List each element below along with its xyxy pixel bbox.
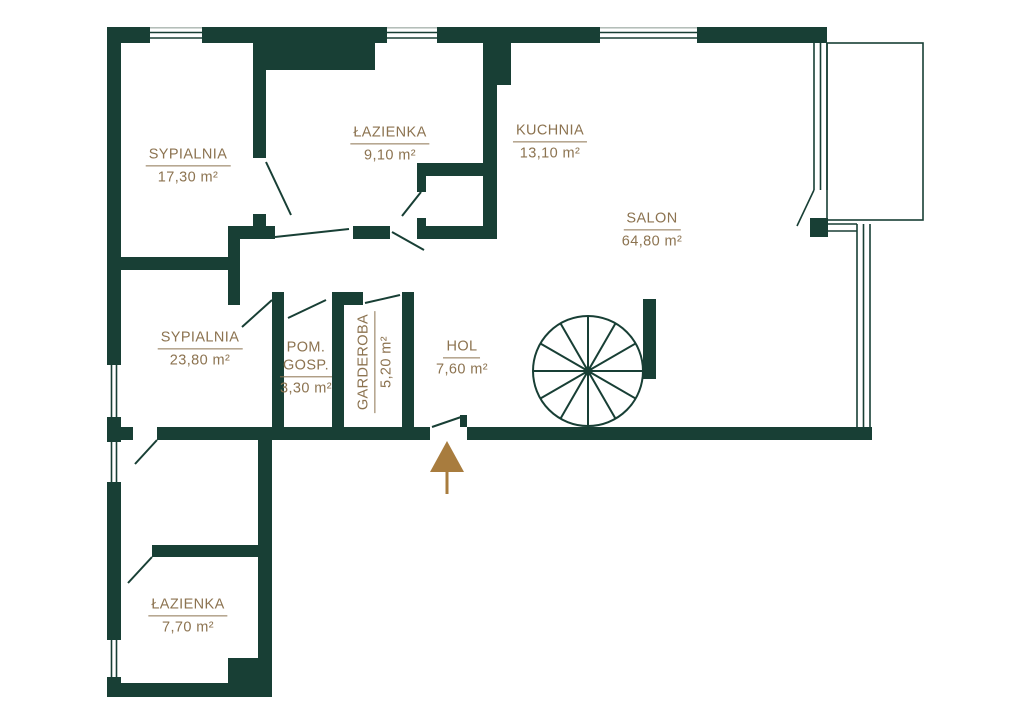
room-area: 64,80 m² bbox=[622, 233, 682, 251]
room-label-sypialnia-2: SYPIALNIA 23,80 m² bbox=[158, 328, 243, 369]
room-name: SYPIALNIA bbox=[146, 145, 231, 166]
window-icon bbox=[107, 640, 121, 677]
room-area: 5,20 m² bbox=[378, 311, 396, 413]
room-label-salon: SALON 64,80 m² bbox=[622, 209, 682, 250]
room-area: 7,60 m² bbox=[436, 361, 488, 379]
window-icon bbox=[107, 365, 121, 417]
floor-plan: SYPIALNIA 17,30 m² ŁAZIENKA 9,10 m² KUCH… bbox=[0, 0, 1024, 725]
balcony-outline bbox=[827, 43, 923, 220]
room-name: GARDEROBA bbox=[354, 311, 375, 413]
door-swing-line bbox=[365, 295, 400, 303]
door-swing-line bbox=[242, 300, 272, 327]
room-area: 9,10 m² bbox=[350, 147, 429, 165]
room-name: GOSP. bbox=[280, 356, 332, 377]
door-swing-line bbox=[288, 300, 326, 318]
room-label-kuchnia: KUCHNIA 13,10 m² bbox=[513, 121, 587, 162]
spiral-staircase-icon bbox=[533, 316, 643, 426]
room-label-garderoba: GARDEROBA 5,20 m² bbox=[354, 311, 395, 413]
room-name: HOL bbox=[443, 337, 480, 358]
room-area: 17,30 m² bbox=[146, 169, 231, 187]
door-swing-line bbox=[135, 440, 157, 464]
window-icon bbox=[150, 27, 202, 43]
room-label-sypialnia-1: SYPIALNIA 17,30 m² bbox=[146, 145, 231, 186]
room-label-lazienka-1: ŁAZIENKA 9,10 m² bbox=[350, 123, 429, 164]
room-area: 3,30 m² bbox=[280, 380, 332, 398]
room-name: ŁAZIENKA bbox=[350, 123, 429, 144]
door-swing-line bbox=[402, 192, 421, 216]
entrance-door-leaf bbox=[432, 416, 464, 427]
door-swing-line bbox=[275, 229, 349, 237]
door-swing-line bbox=[128, 557, 152, 583]
room-label-hol: HOL 7,60 m² bbox=[436, 337, 488, 378]
room-area: 23,80 m² bbox=[158, 352, 243, 370]
window-icon bbox=[107, 442, 121, 482]
window-icon bbox=[387, 27, 437, 43]
door-swing-line bbox=[266, 162, 291, 215]
glass-wall-windows bbox=[797, 43, 870, 427]
room-name: SALON bbox=[623, 209, 680, 230]
room-area: 13,10 m² bbox=[513, 145, 587, 163]
window-icon bbox=[600, 27, 697, 43]
entrance-arrow-icon bbox=[430, 441, 464, 494]
room-label-lazienka-2: ŁAZIENKA 7,70 m² bbox=[148, 595, 227, 636]
room-area: 7,70 m² bbox=[148, 619, 227, 637]
room-name: SYPIALNIA bbox=[158, 328, 243, 349]
room-name: ŁAZIENKA bbox=[148, 595, 227, 616]
room-label-pom-gosp: POM. GOSP. 3,30 m² bbox=[280, 338, 332, 397]
room-name: KUCHNIA bbox=[513, 121, 587, 142]
room-name: POM. bbox=[284, 338, 329, 356]
